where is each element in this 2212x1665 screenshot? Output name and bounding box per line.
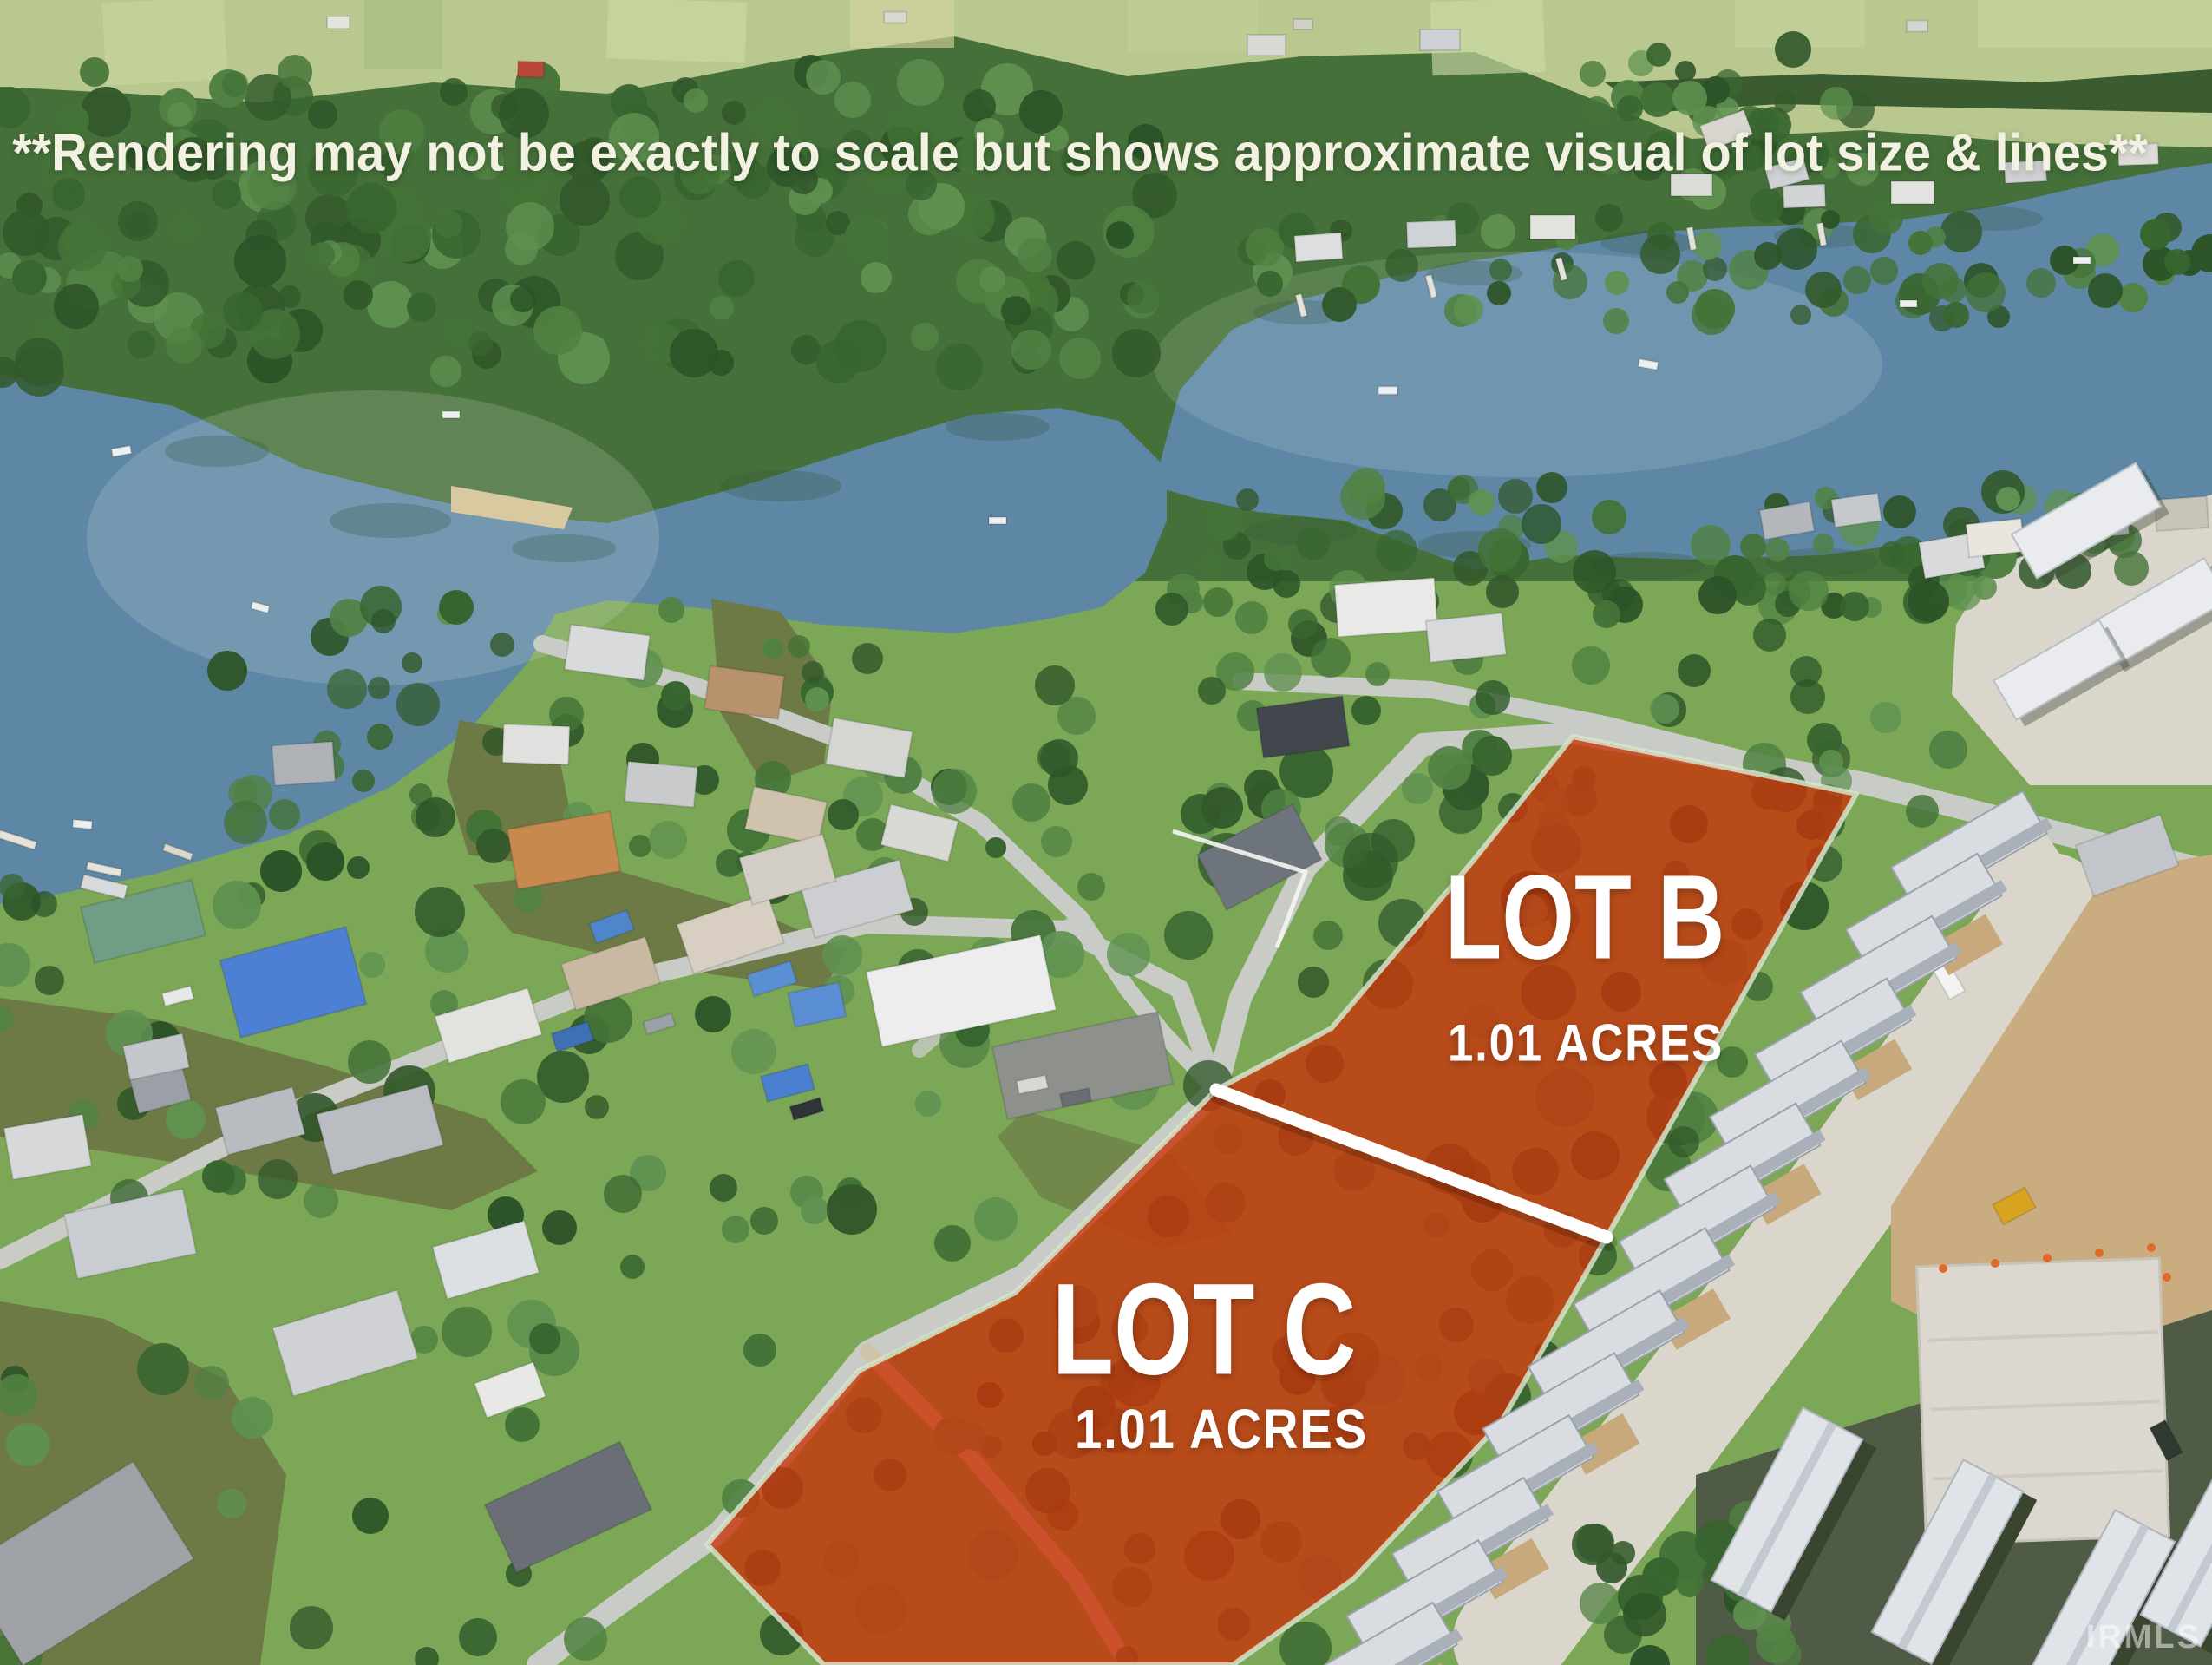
aerial-lot-rendering: **Rendering may not be exactly to scale … <box>0 0 2212 1665</box>
aerial-photo <box>0 0 2212 1665</box>
